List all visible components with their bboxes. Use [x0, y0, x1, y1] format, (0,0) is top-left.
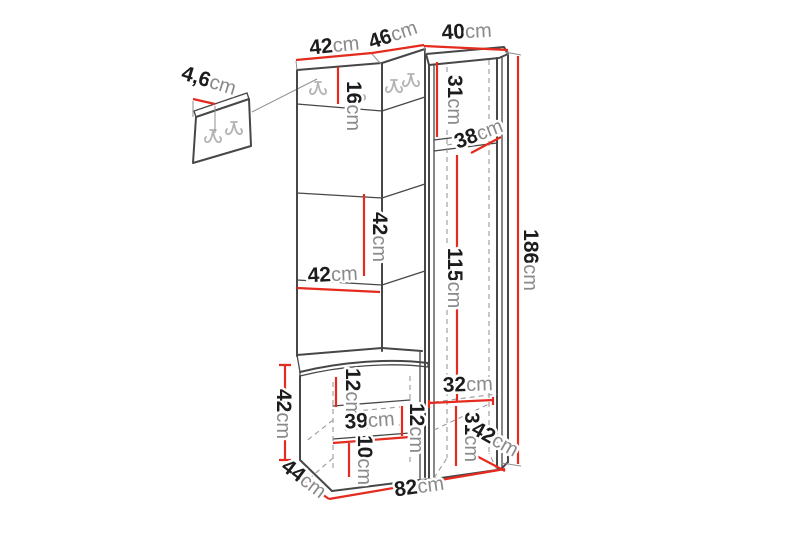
dim-label-bench-height: 42cm: [272, 389, 295, 439]
left-division-upper: [297, 193, 382, 198]
dim-label-drawer-height: 12cm: [405, 403, 428, 453]
diagram-canvas: 42cm 46cm 40cm 4,6cm 16cm 31cm 38cm 115c…: [0, 0, 800, 533]
dim-label-detail-thickness: 4,6cm: [179, 62, 239, 100]
coat-hook-icon: [310, 82, 326, 94]
detail-hook-panel: [193, 93, 251, 163]
dim-label-mid-panel-height: 42cm: [368, 212, 391, 262]
dim-label-bench-bottom-offset: 10cm: [353, 435, 376, 485]
dim-label-right-top-section: 31cm: [443, 75, 466, 125]
hook-strip-bottom-edge: [297, 104, 382, 111]
dimension-labels: 42cm 46cm 40cm 4,6cm 16cm 31cm 38cm 115c…: [179, 16, 542, 503]
corner-division-upper: [382, 184, 425, 198]
dim-label-total-height: 186cm: [519, 229, 542, 291]
coat-hook-icon: [205, 130, 221, 142]
left-wing-panel: [297, 63, 382, 356]
dim-label-right-bottom-width: 32cm: [442, 372, 493, 397]
dim-label-total-width: 82cm: [393, 472, 446, 502]
bench-seat-back-edge: [297, 348, 422, 355]
corner-division-lower: [382, 271, 425, 285]
coat-hook-icon: [226, 122, 242, 134]
dim-label-right-width: 40cm: [441, 19, 492, 45]
callout-line: [252, 79, 317, 112]
detail-thickness-dim-line: [193, 99, 215, 104]
corner-strip-bottom-edge: [382, 97, 425, 111]
dim-label-hook-strip-height: 16cm: [342, 81, 365, 131]
dim-label-drawer-width: 39cm: [344, 407, 396, 433]
dim-mid-panel-width: [297, 288, 380, 292]
hallway-furniture-dimension-diagram: 42cm 46cm 40cm 4,6cm 16cm 31cm 38cm 115c…: [0, 0, 800, 533]
dim-label-corner-width: 46cm: [365, 16, 420, 54]
dim-label-right-mid-section: 115cm: [443, 248, 466, 309]
coat-hook-icon: [386, 80, 402, 92]
coat-hook-icon: [403, 74, 419, 86]
dim-label-mid-panel-width: 42cm: [307, 262, 358, 288]
